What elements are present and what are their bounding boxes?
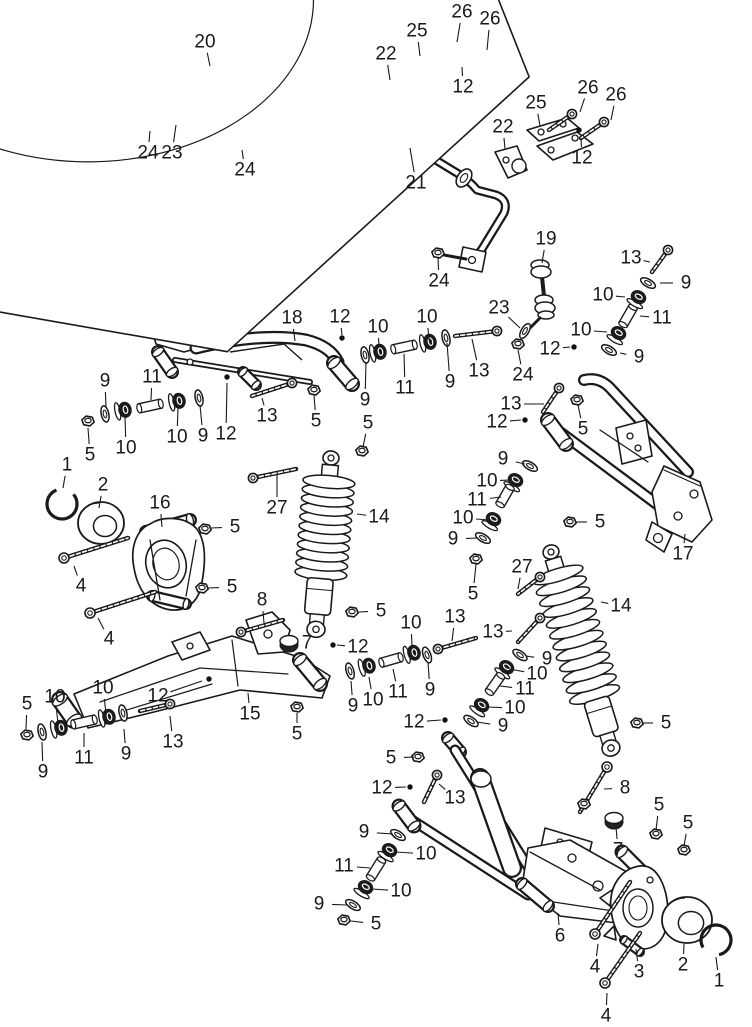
callout-leader — [538, 114, 540, 126]
callout-number: 22 — [492, 117, 513, 138]
callout-number: 9 — [498, 449, 509, 470]
callout-number: 21 — [405, 173, 426, 194]
callout-number: 5 — [311, 411, 322, 432]
callout-number: 13 — [444, 607, 465, 628]
callout-leader — [596, 944, 598, 956]
callout-leader — [125, 417, 126, 437]
callout-number: 2 — [678, 955, 689, 976]
callout-number: 13 — [468, 361, 489, 382]
callout-number: 4 — [104, 629, 115, 650]
callout-number: 1 — [714, 971, 725, 992]
callout-number: 26 — [479, 9, 500, 30]
callout-leader — [500, 686, 512, 687]
callout-number: 5 — [376, 601, 387, 622]
callout-number: 11 — [652, 308, 672, 329]
callout-leader — [88, 428, 89, 444]
callout-number: 8 — [257, 590, 268, 611]
callout-leader — [42, 742, 43, 761]
callout-number: 10 — [416, 307, 437, 328]
callout-number: 10 — [400, 613, 421, 634]
callout-number: 12 — [539, 339, 560, 360]
callout-leader — [262, 398, 264, 405]
callout-leader — [474, 564, 476, 583]
callout-number: 2 — [98, 475, 109, 496]
callout-number: 12 — [571, 148, 592, 169]
callout-number: 11 — [395, 378, 415, 399]
callout-number: 26 — [605, 85, 626, 106]
callout-leader — [616, 296, 625, 297]
callout-number: 10 — [570, 320, 591, 341]
callout-number: 25 — [406, 21, 427, 42]
callout-number: 1 — [62, 455, 73, 476]
callout-leader — [314, 395, 315, 410]
callout-leader — [177, 408, 178, 426]
callout-number: 11 — [515, 679, 535, 700]
callout-number: 9 — [121, 744, 132, 765]
callout-leader — [606, 993, 607, 1005]
callout-number: 10 — [362, 690, 383, 711]
callout-leader — [504, 138, 505, 149]
callout-number: 5 — [595, 512, 606, 533]
callout-leader — [63, 476, 65, 488]
callout-number: 18 — [281, 308, 302, 329]
callout-leader — [26, 715, 27, 729]
callout-leader — [428, 662, 429, 679]
callout-number: 10 — [166, 427, 187, 448]
callout-number: 10 — [92, 678, 113, 699]
callout-number: 11 — [74, 748, 94, 769]
callout-number: 27 — [511, 557, 532, 578]
callout-number: 11 — [142, 367, 162, 388]
callout-number: 19 — [535, 229, 556, 250]
callout-leader — [447, 343, 449, 371]
callout-leader — [124, 729, 125, 743]
callout-number: 23 — [161, 143, 182, 164]
callout-number: 5 — [230, 517, 241, 538]
callout-leader — [563, 347, 570, 348]
callout-number: 9 — [100, 371, 111, 392]
callout-number: 9 — [360, 390, 371, 411]
callout-number: 13 — [256, 406, 277, 427]
callout-number: 5 — [292, 724, 303, 745]
callout-number: 7 — [302, 633, 313, 654]
callout-number: 9 — [498, 716, 509, 737]
callout-leader — [611, 106, 614, 120]
callout-number: 24 — [234, 160, 256, 181]
callout-number: 5 — [386, 748, 397, 769]
callout-leader — [640, 316, 649, 317]
callout-number: 10 — [476, 471, 497, 492]
callout-number: 6 — [555, 926, 566, 947]
callout-leader — [105, 392, 106, 407]
callout-leader — [372, 889, 388, 890]
callout-number: 9 — [681, 273, 692, 294]
callout-leader — [170, 716, 172, 731]
callout-number: 9 — [314, 894, 325, 915]
callout-number: 5 — [85, 445, 96, 466]
callout-number: 12 — [329, 307, 350, 328]
callout-leader — [684, 834, 686, 846]
callout-number: 5 — [661, 713, 672, 734]
callout-number: 9 — [198, 426, 209, 447]
callout-number: 15 — [239, 704, 260, 725]
callout-number: 3 — [634, 962, 645, 983]
callout-leader — [404, 354, 405, 377]
callout-leader — [601, 602, 608, 603]
callout-leader — [716, 957, 718, 970]
callout-number: 5 — [683, 813, 694, 834]
callout-number: 24 — [512, 365, 534, 386]
callout-number: 9 — [359, 822, 370, 843]
callout-leader — [200, 405, 202, 425]
callout-number: 13 — [162, 732, 183, 753]
callout-number: 11 — [334, 856, 354, 877]
callout-leader — [477, 722, 490, 724]
callout-number: 16 — [149, 493, 170, 514]
callout-leader — [365, 362, 366, 389]
callout-number: 12 — [147, 686, 168, 707]
callout-leader — [594, 331, 607, 332]
callout-number: 5 — [363, 413, 374, 434]
callout-number: 24 — [428, 271, 450, 292]
callout-number: 5 — [227, 577, 238, 598]
callout-leader — [411, 634, 412, 646]
callout-number: 5 — [654, 795, 665, 816]
callout-leader — [438, 258, 439, 270]
callout-number: 11 — [388, 682, 408, 703]
callout-leader — [508, 317, 520, 328]
exploded-view-canvas: 2024232425262622122526262212212419232413… — [0, 0, 752, 1027]
callout-number: 27 — [266, 498, 287, 519]
callout-number: 13 — [620, 248, 641, 269]
callout-number: 7 — [613, 840, 624, 861]
callout-leader — [357, 514, 366, 515]
callout-number: 9 — [425, 680, 436, 701]
callout-leader — [427, 720, 441, 721]
callout-leader — [396, 852, 413, 853]
callout-leader — [472, 339, 477, 360]
callout-leader — [226, 383, 227, 423]
callout-leader — [518, 350, 521, 364]
callout-leader — [351, 921, 363, 922]
callout-leader — [518, 578, 520, 589]
callout-number: 4 — [601, 1006, 612, 1027]
callout-leader — [452, 628, 454, 641]
callout-number: 25 — [525, 93, 546, 114]
callout-number: 9 — [445, 372, 456, 393]
callout-leader — [357, 867, 370, 868]
callout-number: 5 — [468, 584, 479, 605]
callout-number: 10 — [44, 687, 65, 708]
callout-number: 10 — [367, 317, 388, 338]
callout-leader — [578, 405, 581, 418]
callout-number: 9 — [348, 696, 359, 717]
callout-leader — [248, 693, 249, 703]
callout-number: 12 — [215, 424, 236, 445]
callout-number: 9 — [634, 347, 645, 368]
callout-number: 14 — [610, 596, 632, 617]
callout-leader — [393, 669, 396, 681]
callout-number: 13 — [482, 622, 503, 643]
callout-leader — [487, 707, 502, 708]
callout-number: 4 — [590, 957, 601, 978]
callout-number: 10 — [592, 285, 613, 306]
callout-leader — [656, 816, 658, 830]
callout-leader — [510, 420, 521, 421]
callout-number: 14 — [368, 507, 390, 528]
callout-number: 23 — [488, 298, 509, 319]
callout-leader — [351, 681, 352, 695]
callout-leader — [337, 645, 345, 646]
callout-number: 26 — [451, 2, 472, 23]
callout-number: 22 — [375, 44, 396, 65]
callout-leader — [332, 904, 347, 905]
callout-number: 5 — [371, 914, 382, 935]
callout-leader — [74, 566, 77, 576]
callout-number: 5 — [22, 694, 33, 715]
callout-leader — [341, 328, 342, 335]
callout-number: 12 — [371, 778, 392, 799]
callout-number: 9 — [38, 762, 49, 783]
callout-number: 12 — [486, 412, 507, 433]
callout-number: 10 — [390, 881, 411, 902]
callout-number: 20 — [194, 32, 215, 53]
callout-leader — [363, 434, 366, 447]
callout-number: 8 — [620, 778, 631, 799]
callout-number: 5 — [578, 419, 589, 440]
callout-number: 26 — [577, 78, 598, 99]
callout-number: 12 — [452, 77, 473, 98]
callout-number: 10 — [452, 508, 473, 529]
callout-number: 4 — [76, 576, 87, 597]
callout-number: 13 — [444, 788, 465, 809]
callout-number: 10 — [115, 438, 136, 459]
callout-number: 17 — [672, 544, 693, 565]
callout-leader — [644, 261, 650, 262]
callout-leader — [620, 353, 626, 354]
callout-number: 24 — [137, 143, 159, 164]
callout-number: 12 — [347, 637, 368, 658]
callout-leader — [580, 98, 585, 112]
callout-leader — [369, 677, 371, 689]
callout-leader — [151, 388, 152, 400]
callout-number: 10 — [415, 844, 436, 865]
parts-diagram: Rear suspension exploded parts diagram 2… — [0, 0, 752, 1027]
callout-number: 9 — [448, 529, 459, 550]
callout-number: 12 — [403, 712, 424, 733]
